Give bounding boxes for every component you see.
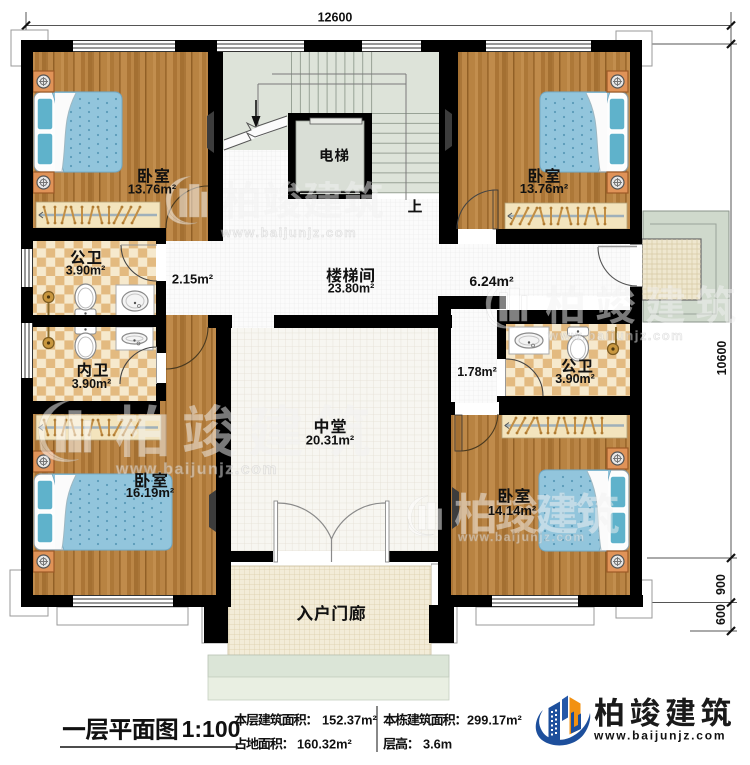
- svg-text:152.37m²: 152.37m²: [322, 713, 377, 728]
- svg-text:1.78m²: 1.78m²: [457, 365, 497, 379]
- svg-text:900: 900: [714, 574, 728, 595]
- svg-text:3.6m: 3.6m: [423, 737, 452, 752]
- svg-text:10600: 10600: [715, 341, 729, 376]
- svg-text:14.14m²: 14.14m²: [488, 503, 537, 518]
- svg-text:2.15m²: 2.15m²: [172, 272, 214, 287]
- svg-text:12600: 12600: [318, 11, 353, 25]
- svg-text:www.baijunjz.com: www.baijunjz.com: [593, 729, 726, 743]
- svg-text:20.31m²: 20.31m²: [306, 433, 355, 448]
- svg-text:13.76m²: 13.76m²: [520, 181, 569, 196]
- svg-text:www.baijunjz.com: www.baijunjz.com: [220, 225, 357, 240]
- svg-text:160.32m²: 160.32m²: [297, 737, 352, 752]
- svg-text:www.baijunjz.com: www.baijunjz.com: [547, 328, 684, 343]
- svg-text:16.19m²: 16.19m²: [126, 485, 175, 500]
- svg-text:13.76m²: 13.76m²: [128, 182, 177, 197]
- svg-text:6.24m²: 6.24m²: [469, 273, 514, 289]
- svg-text:299.17m²: 299.17m²: [467, 713, 522, 728]
- svg-text:3.90m²: 3.90m²: [66, 264, 106, 278]
- svg-text:1:100: 1:100: [182, 716, 241, 742]
- svg-text:www.baijunjz.com: www.baijunjz.com: [457, 530, 586, 544]
- svg-text:3.90m²: 3.90m²: [555, 372, 595, 386]
- svg-text:600: 600: [714, 604, 728, 625]
- svg-text:23.80m²: 23.80m²: [328, 282, 375, 296]
- svg-text:3.90m²: 3.90m²: [72, 377, 112, 391]
